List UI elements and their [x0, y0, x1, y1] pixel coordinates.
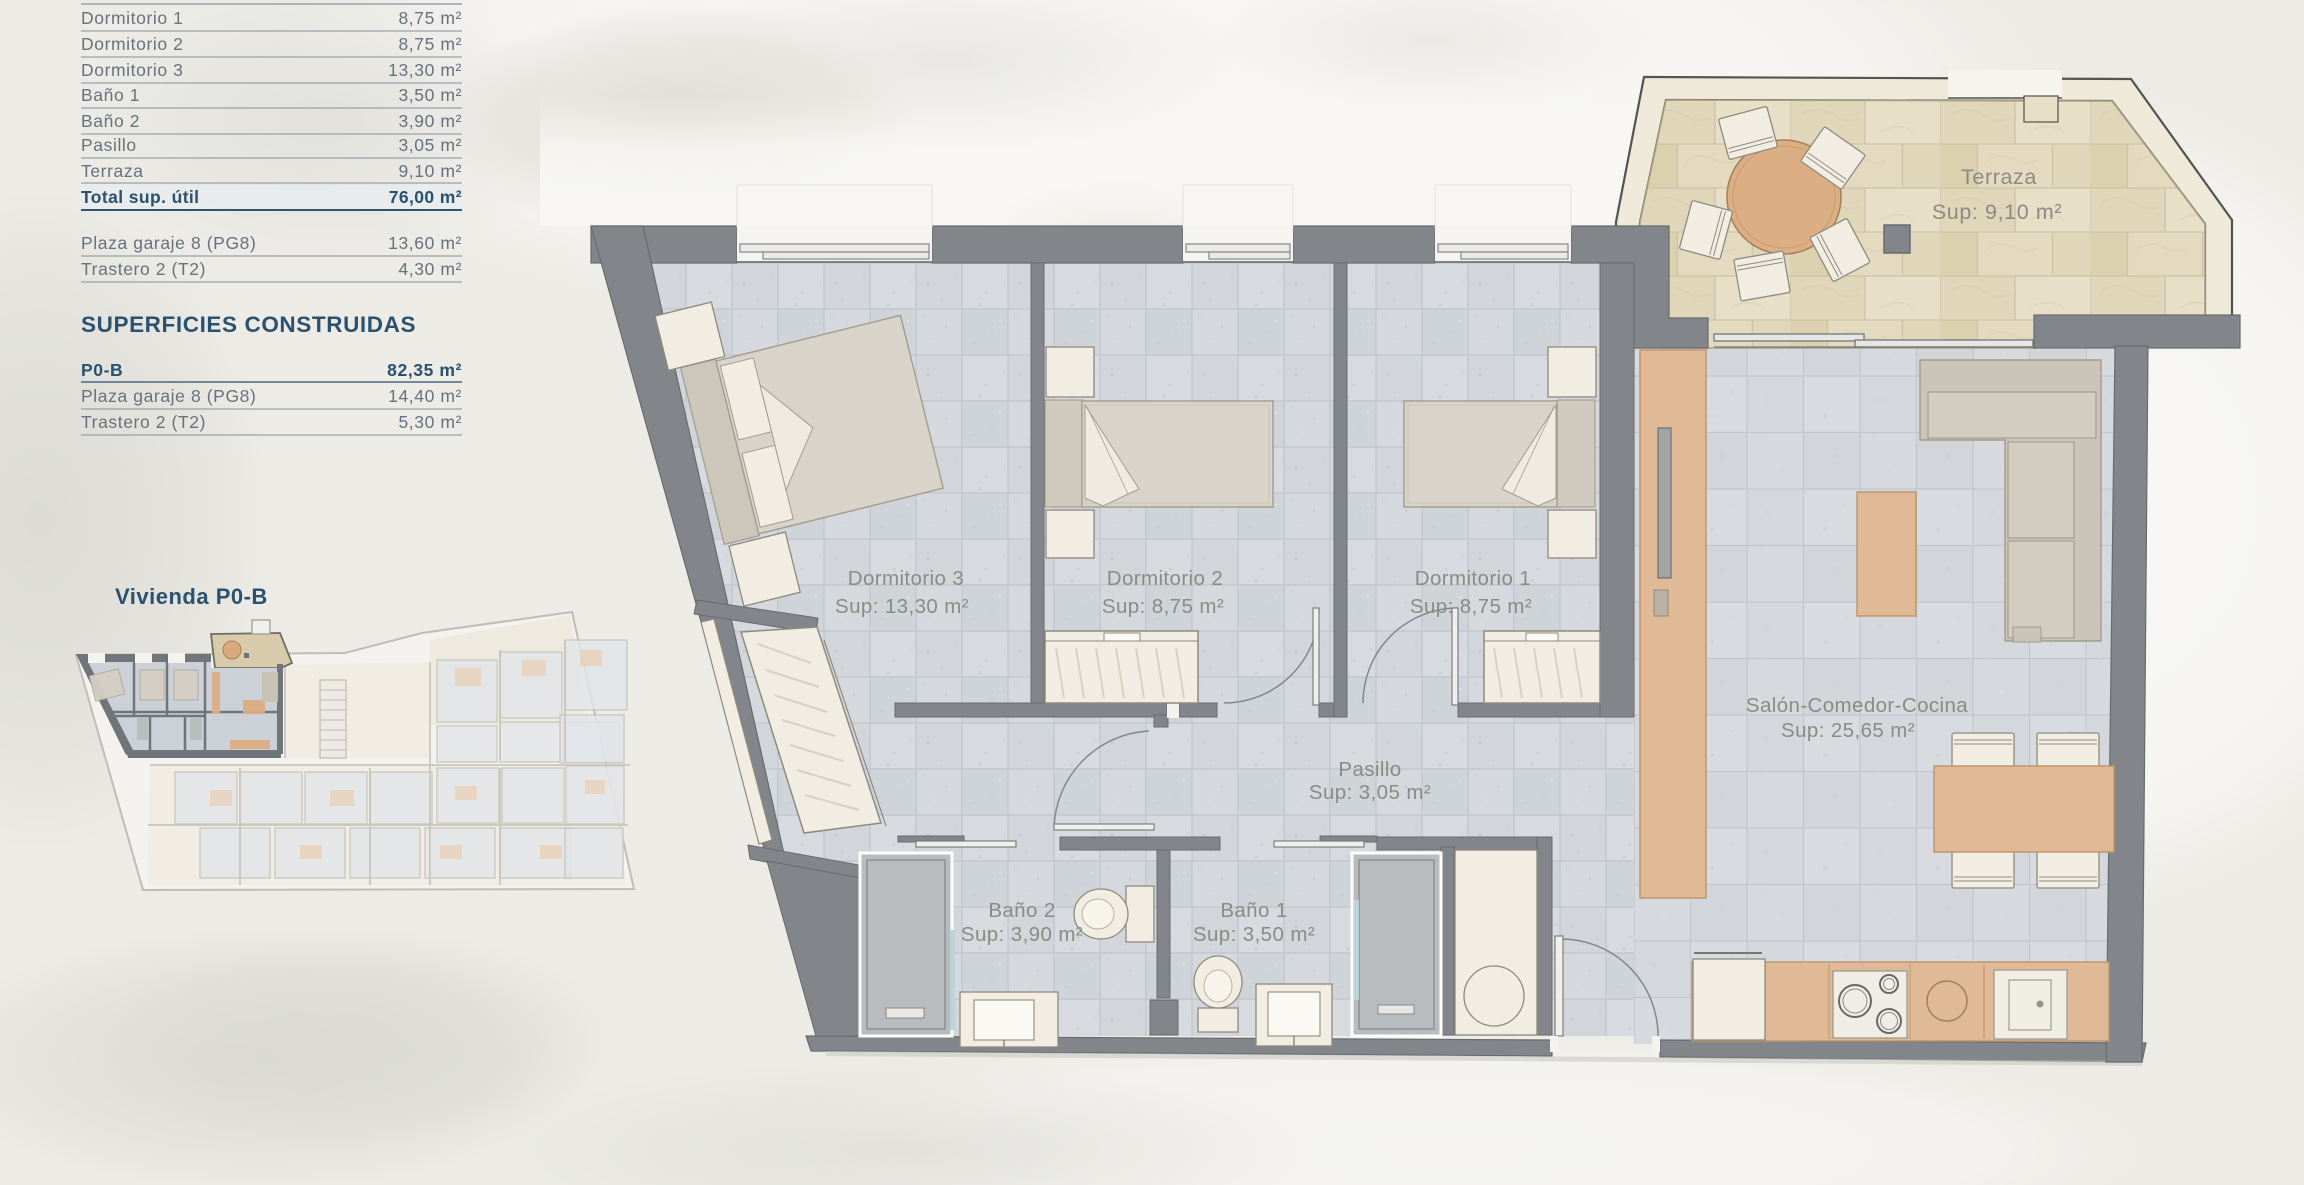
svg-text:Dormitorio 2: Dormitorio 2: [81, 34, 184, 54]
svg-text:Pasillo: Pasillo: [81, 135, 137, 155]
svg-text:SUPERFICIES CONSTRUIDAS: SUPERFICIES CONSTRUIDAS: [81, 312, 416, 337]
svg-text:4,30 m²: 4,30 m²: [398, 259, 462, 279]
svg-text:3,05 m²: 3,05 m²: [398, 135, 462, 155]
svg-text:9,10 m²: 9,10 m²: [398, 161, 462, 181]
svg-text:Plaza garaje 8 (PG8): Plaza garaje 8 (PG8): [81, 233, 256, 253]
svg-text:8,75 m²: 8,75 m²: [398, 34, 462, 54]
svg-text:5,30 m²: 5,30 m²: [398, 412, 462, 432]
svg-text:3,90 m²: 3,90 m²: [398, 111, 462, 131]
svg-text:Baño 2: Baño 2: [81, 111, 140, 131]
svg-text:14,40 m²: 14,40 m²: [388, 386, 462, 406]
svg-text:Baño 1: Baño 1: [1220, 899, 1287, 922]
svg-text:Sup: 8,75 m²: Sup: 8,75 m²: [1102, 595, 1224, 618]
svg-text:Dormitorio 3: Dormitorio 3: [848, 567, 964, 590]
svg-text:Terraza: Terraza: [81, 161, 144, 181]
svg-text:P0-B: P0-B: [81, 360, 123, 380]
svg-text:Salón-Comedor-Cocina: Salón-Comedor-Cocina: [1746, 694, 1968, 717]
svg-text:13,60 m²: 13,60 m²: [388, 233, 462, 253]
svg-text:Sup: 3,90 m²: Sup: 3,90 m²: [961, 923, 1083, 946]
svg-text:13,30 m²: 13,30 m²: [388, 60, 462, 80]
svg-text:Plaza garaje 8 (PG8): Plaza garaje 8 (PG8): [81, 386, 256, 406]
svg-text:Baño 1: Baño 1: [81, 85, 140, 105]
svg-text:Terraza: Terraza: [1961, 165, 2037, 189]
svg-text:Sup: 3,50 m²: Sup: 3,50 m²: [1193, 923, 1315, 946]
svg-text:Trastero 2 (T2): Trastero 2 (T2): [81, 412, 206, 432]
svg-text:82,35 m²: 82,35 m²: [387, 360, 462, 380]
svg-text:Dormitorio 1: Dormitorio 1: [1415, 567, 1531, 590]
svg-text:Vivienda P0-B: Vivienda P0-B: [115, 584, 268, 609]
svg-text:3,50 m²: 3,50 m²: [398, 85, 462, 105]
svg-text:Trastero 2 (T2): Trastero 2 (T2): [81, 259, 206, 279]
svg-text:Pasillo: Pasillo: [1338, 758, 1401, 781]
svg-text:76,00 m²: 76,00 m²: [389, 187, 462, 207]
svg-text:Sup: 9,10 m²: Sup: 9,10 m²: [1932, 200, 2062, 224]
svg-text:Dormitorio 1: Dormitorio 1: [81, 8, 184, 28]
svg-text:8,75 m²: 8,75 m²: [398, 8, 462, 28]
svg-text:Sup: 3,05 m²: Sup: 3,05 m²: [1309, 781, 1431, 804]
svg-text:Total sup. útil: Total sup. útil: [81, 187, 199, 207]
svg-text:Baño 2: Baño 2: [988, 899, 1055, 922]
svg-text:Sup: 13,30 m²: Sup: 13,30 m²: [835, 595, 969, 618]
svg-text:Sup: 25,65 m²: Sup: 25,65 m²: [1781, 719, 1915, 742]
svg-text:Dormitorio 3: Dormitorio 3: [81, 60, 184, 80]
svg-text:Sup: 8,75 m²: Sup: 8,75 m²: [1410, 595, 1532, 618]
svg-text:Dormitorio 2: Dormitorio 2: [1107, 567, 1223, 590]
